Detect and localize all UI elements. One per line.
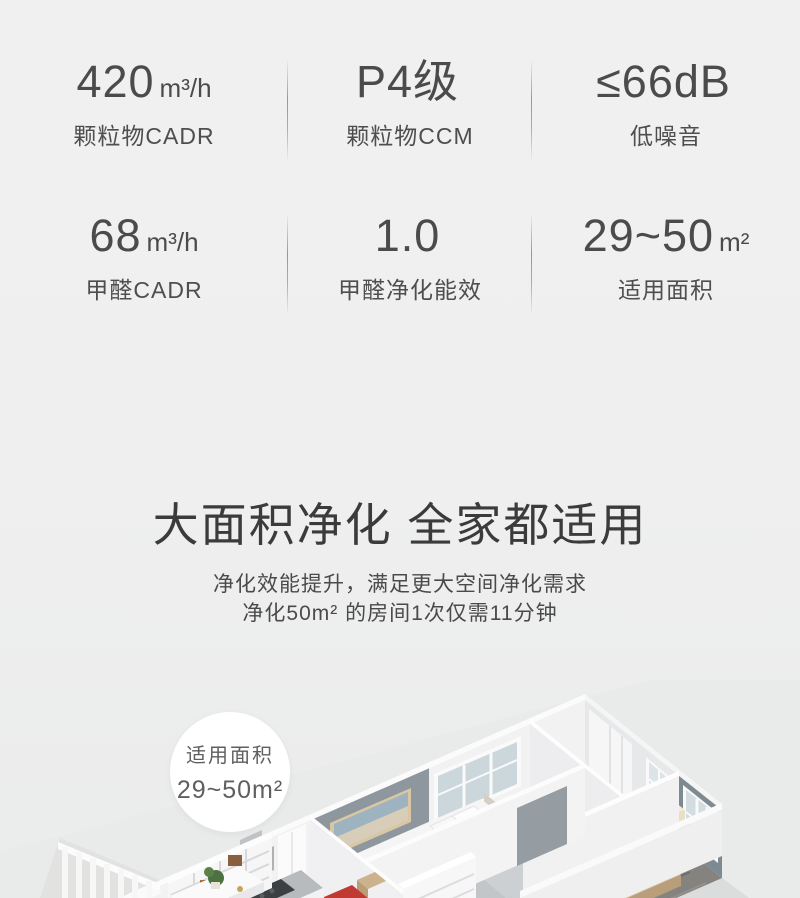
spec-label: 甲醛CADR: [0, 271, 288, 305]
spec-value: ≤66dB: [596, 59, 731, 104]
spec-label: 适用面积: [532, 271, 800, 305]
spec-formaldehyde-cadr: 68m³/h 甲醛CADR: [0, 211, 288, 305]
subtitle-line-2: 净化50m² 的房间1次仅需11分钟: [0, 599, 800, 628]
spec-unit: m²: [719, 229, 749, 255]
badge-value: 29~50m²: [177, 776, 283, 805]
spec-label: 颗粒物CADR: [0, 117, 288, 151]
spec-value-row: P4级: [288, 59, 532, 104]
spec-particulate-ccm: P4级 颗粒物CCM: [288, 57, 532, 151]
spec-value: 68: [89, 213, 141, 258]
spec-applicable-area: 29~50m² 适用面积: [532, 211, 800, 305]
spec-unit: m³/h: [160, 75, 212, 101]
section-title: 大面积净化 全家都适用: [0, 489, 800, 555]
floor-plan-illustration: [0, 680, 800, 898]
spec-label: 甲醛净化能效: [288, 271, 532, 305]
spec-value: 420: [76, 59, 154, 104]
section-subtitle: 净化效能提升，满足更大空间净化需求 净化50m² 的房间1次仅需11分钟: [0, 570, 800, 628]
section-headline: 大面积净化 全家都适用 净化效能提升，满足更大空间净化需求 净化50m² 的房间…: [0, 489, 800, 628]
spec-value-row: ≤66dB: [532, 59, 800, 104]
spec-value-row: 420m³/h: [0, 59, 288, 104]
spec-value-row: 68m³/h: [0, 213, 288, 258]
spec-label: 颗粒物CCM: [288, 117, 532, 151]
spec-value: 1.0: [375, 213, 441, 258]
spec-row-2: 68m³/h 甲醛CADR 1.0 甲醛净化能效 29~50m² 适用面积: [0, 211, 800, 305]
spec-grid: 420m³/h 颗粒物CADR P4级 颗粒物CCM ≤66dB 低噪音 68m…: [0, 57, 800, 305]
spec-particulate-cadr: 420m³/h 颗粒物CADR: [0, 57, 288, 151]
spec-value: P4级: [356, 59, 459, 104]
badge-label: 适用面积: [186, 739, 274, 768]
spec-low-noise: ≤66dB 低噪音: [532, 57, 800, 151]
subtitle-line-1: 净化效能提升，满足更大空间净化需求: [0, 570, 800, 599]
spec-label: 低噪音: [532, 117, 800, 151]
spec-formaldehyde-efficiency: 1.0 甲醛净化能效: [288, 211, 532, 305]
applicable-area-badge: 适用面积 29~50m²: [170, 712, 290, 832]
spec-unit: m³/h: [147, 229, 199, 255]
spec-value-row: 1.0: [288, 213, 532, 258]
spec-value: 29~50: [583, 213, 714, 258]
spec-value-row: 29~50m²: [532, 213, 800, 258]
spec-row-1: 420m³/h 颗粒物CADR P4级 颗粒物CCM ≤66dB 低噪音: [0, 57, 800, 151]
